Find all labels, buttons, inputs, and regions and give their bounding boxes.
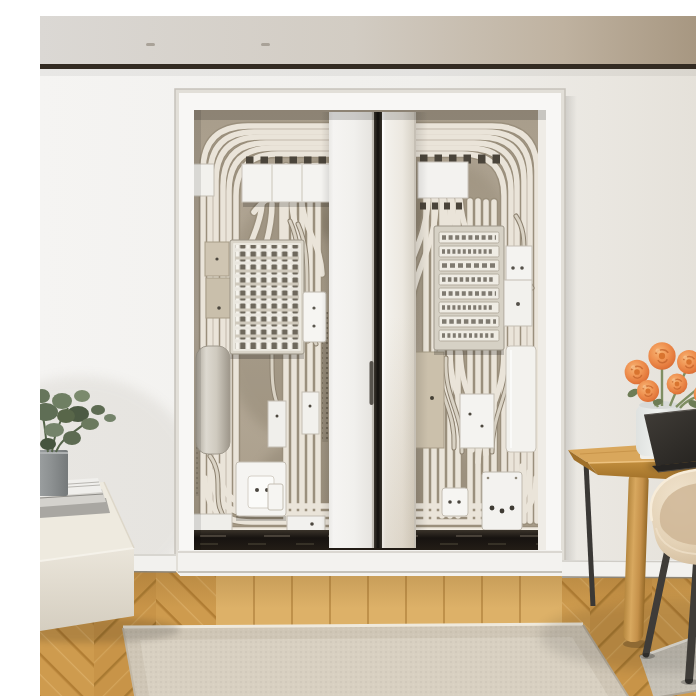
junction-box-holes <box>482 472 522 535</box>
room-photo: Bright modern room: open double closet d… <box>40 16 696 696</box>
door-handle[interactable] <box>370 361 374 405</box>
closet-interior <box>190 110 546 552</box>
threshold <box>178 550 562 578</box>
door-gap <box>374 112 382 548</box>
closet-door-right[interactable] <box>382 112 416 548</box>
room-scene <box>40 16 696 696</box>
ceiling-shadow-gap <box>40 64 696 69</box>
breaker-panel <box>230 240 304 359</box>
ceiling <box>40 16 696 69</box>
closet <box>175 89 565 584</box>
label-panel <box>434 226 504 355</box>
cabinet-box <box>242 164 330 202</box>
closet-door-left[interactable] <box>329 112 374 548</box>
plant-pot <box>40 450 68 496</box>
